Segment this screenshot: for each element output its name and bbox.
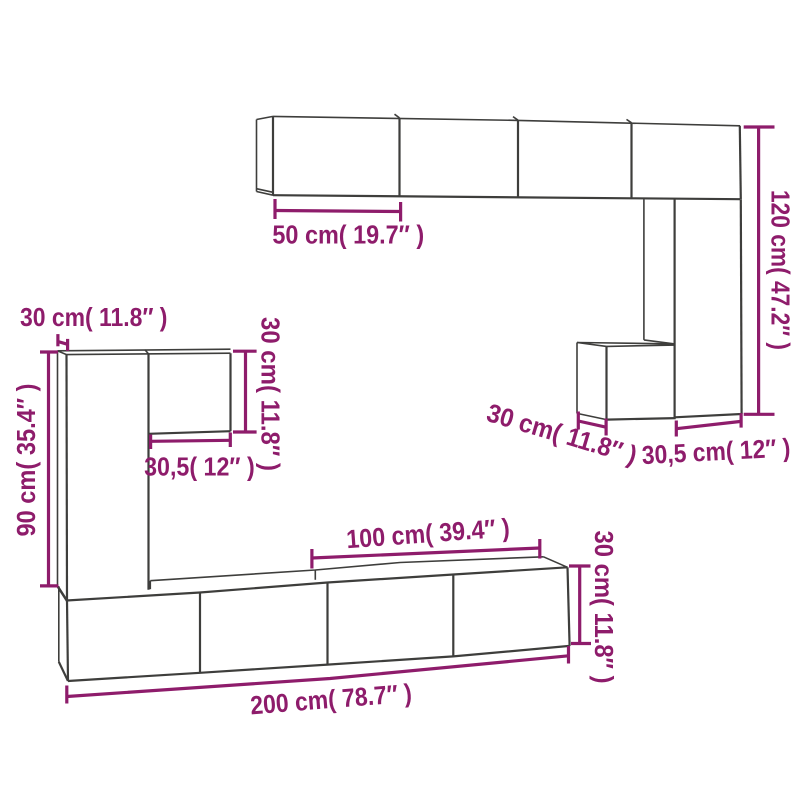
svg-text:30 cm( 11.8″ ): 30 cm( 11.8″ ) (20, 302, 168, 332)
svg-text:50 cm( 19.7″ ): 50 cm( 19.7″ ) (272, 220, 424, 250)
svg-text:30 cm( 11.8″ ): 30 cm( 11.8″ ) (483, 397, 640, 470)
svg-text:30,5 cm( 12″ ): 30,5 cm( 12″ ) (641, 432, 791, 470)
svg-text:30 cm( 11.8″ ): 30 cm( 11.8″ ) (256, 317, 286, 471)
svg-text:120 cm( 47.2″ ): 120 cm( 47.2″ ) (765, 190, 795, 350)
svg-text:30 cm( 11.8″ ): 30 cm( 11.8″ ) (589, 531, 619, 684)
svg-text:90 cm( 35.4″ ): 90 cm( 35.4″ ) (11, 384, 41, 537)
svg-text:30,5( 12″ ): 30,5( 12″ ) (144, 452, 255, 482)
svg-text:100 cm( 39.4″ ): 100 cm( 39.4″ ) (345, 512, 510, 554)
svg-text:200 cm( 78.7″ ): 200 cm( 78.7″ ) (249, 678, 413, 721)
